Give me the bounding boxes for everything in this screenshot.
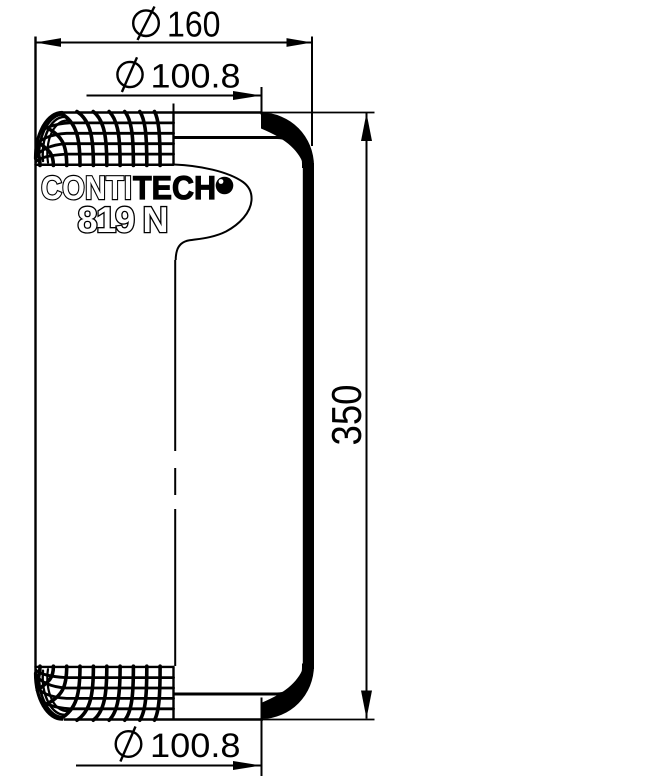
svg-text:819 N: 819 N — [78, 199, 169, 240]
svg-text:160: 160 — [167, 3, 221, 44]
svg-text:350: 350 — [323, 385, 370, 446]
svg-text:100.8: 100.8 — [151, 58, 241, 96]
svg-text:100.8: 100.8 — [150, 727, 241, 765]
